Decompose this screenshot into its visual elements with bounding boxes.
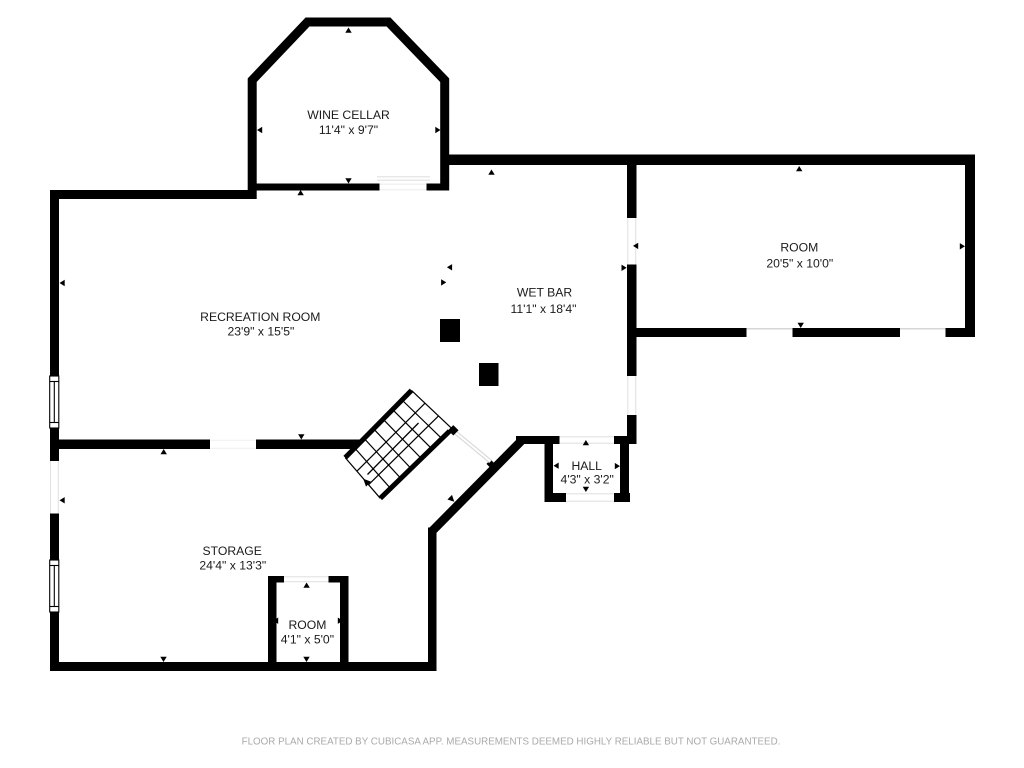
svg-text:WINE CELLAR: WINE CELLAR: [307, 108, 390, 122]
svg-text:FLOOR PLAN CREATED BY CUBICASA: FLOOR PLAN CREATED BY CUBICASA APP. MEAS…: [242, 736, 781, 747]
svg-text:4'1" x 5'0": 4'1" x 5'0": [281, 633, 334, 647]
svg-text:20'5" x 10'0": 20'5" x 10'0": [766, 257, 833, 271]
svg-text:ROOM: ROOM: [780, 240, 818, 254]
svg-text:ROOM: ROOM: [288, 618, 326, 632]
svg-text:HALL: HALL: [571, 459, 602, 473]
svg-text:11'1" x 18'4": 11'1" x 18'4": [511, 302, 577, 316]
svg-text:23'9" x 15'5": 23'9" x 15'5": [227, 324, 294, 338]
svg-text:RECREATION ROOM: RECREATION ROOM: [200, 310, 320, 324]
svg-text:11'4" x 9'7": 11'4" x 9'7": [319, 123, 378, 137]
svg-text:STORAGE: STORAGE: [203, 544, 262, 558]
svg-text:4'3" x 3'2": 4'3" x 3'2": [561, 473, 614, 487]
svg-text:WET BAR: WET BAR: [517, 285, 573, 299]
svg-text:24'4" x 13'3": 24'4" x 13'3": [199, 558, 266, 572]
